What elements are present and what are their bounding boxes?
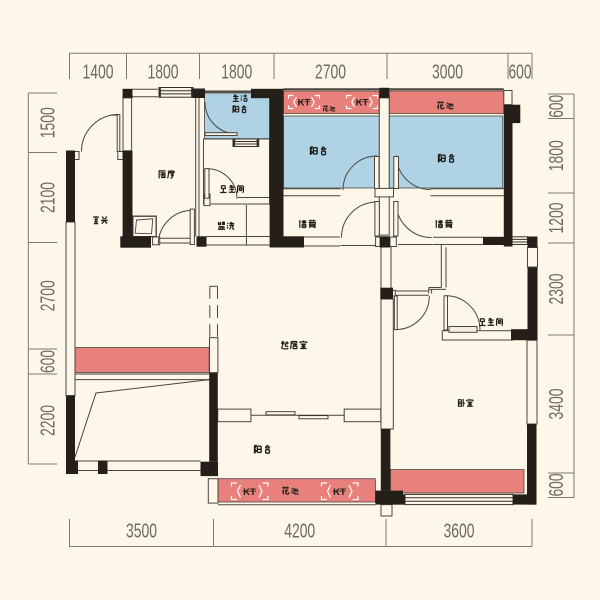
svg-text:600: 600 [509, 62, 532, 84]
svg-text:1400: 1400 [83, 62, 114, 84]
svg-text:600: 600 [38, 350, 60, 373]
svg-text:3600: 3600 [444, 521, 475, 543]
svg-text:3400: 3400 [546, 389, 568, 420]
svg-text:3500: 3500 [126, 521, 157, 543]
svg-text:4200: 4200 [284, 521, 315, 543]
svg-text:1200: 1200 [546, 203, 568, 234]
svg-text:1800: 1800 [221, 62, 252, 84]
svg-text:3000: 3000 [432, 62, 463, 84]
svg-text:2300: 2300 [546, 274, 568, 305]
svg-text:1800: 1800 [546, 140, 568, 171]
svg-text:600: 600 [546, 95, 568, 118]
svg-text:KT: KT [333, 487, 346, 498]
svg-text:2700: 2700 [315, 62, 346, 84]
svg-text:600: 600 [546, 474, 568, 497]
svg-text:KT: KT [298, 97, 311, 108]
svg-text:1800: 1800 [148, 62, 179, 84]
svg-text:1500: 1500 [38, 107, 60, 138]
svg-text:2700: 2700 [38, 280, 60, 311]
svg-text:KT: KT [356, 97, 369, 108]
svg-text:KT: KT [243, 487, 256, 498]
svg-text:2100: 2100 [38, 182, 60, 213]
svg-text:2200: 2200 [38, 405, 60, 436]
